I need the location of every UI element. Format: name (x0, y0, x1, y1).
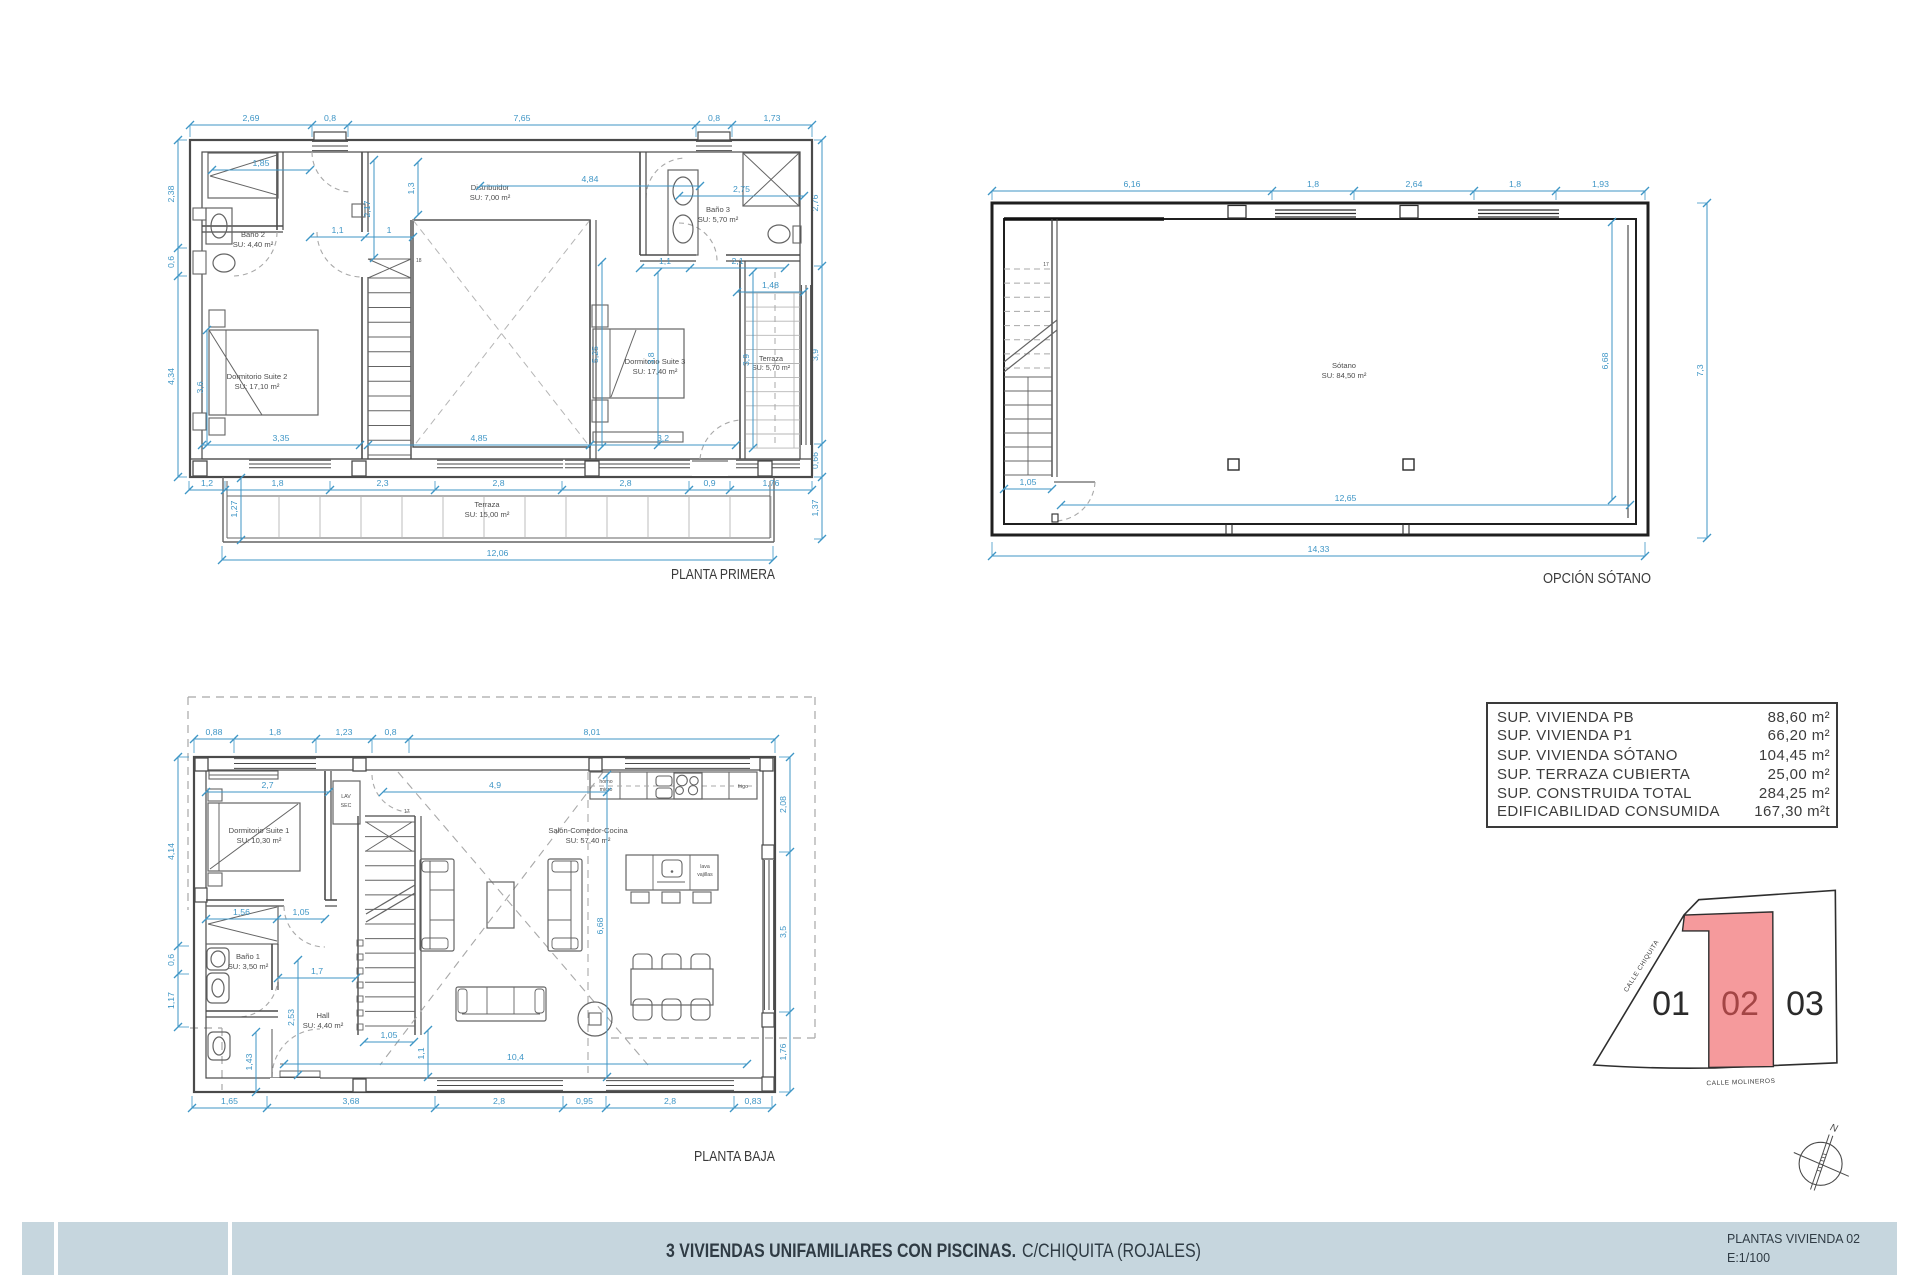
svg-text:284,25 m²: 284,25 m² (1759, 785, 1830, 802)
svg-text:SUP. VIVIENDA SÓTANO: SUP. VIVIENDA SÓTANO (1497, 747, 1678, 764)
svg-text:6,68: 6,68 (1600, 352, 1610, 369)
svg-text:25,00 m²: 25,00 m² (1768, 766, 1830, 783)
svg-text:18: 18 (416, 258, 422, 264)
svg-text:Salón-Comedor-Cocina: Salón-Comedor-Cocina (548, 826, 628, 835)
svg-text:C/CHIQUITA (ROJALES): C/CHIQUITA (ROJALES) (1022, 1241, 1201, 1262)
svg-text:vajillas: vajillas (697, 872, 713, 878)
svg-text:SU: 57,40 m²: SU: 57,40 m² (566, 836, 611, 845)
svg-text:1,1: 1,1 (416, 1047, 426, 1059)
svg-text:0,8: 0,8 (384, 727, 396, 737)
svg-text:4,84: 4,84 (582, 174, 599, 184)
svg-text:3,5: 3,5 (778, 926, 788, 938)
svg-text:2,17: 2,17 (362, 200, 372, 217)
svg-text:SU: 84,50 m²: SU: 84,50 m² (1322, 371, 1367, 380)
svg-text:Baño 1: Baño 1 (236, 952, 260, 961)
svg-text:SU: 5,70 m²: SU: 5,70 m² (698, 215, 739, 224)
svg-text:3,8: 3,8 (646, 352, 656, 364)
svg-text:PLANTA BAJA: PLANTA BAJA (694, 1148, 775, 1165)
svg-text:2,8: 2,8 (664, 1096, 676, 1106)
svg-text:1,1: 1,1 (659, 256, 671, 266)
svg-text:0,8: 0,8 (708, 113, 720, 123)
svg-text:1,76: 1,76 (763, 478, 780, 488)
svg-text:1: 1 (387, 225, 392, 235)
svg-text:E:1/100: E:1/100 (1727, 1251, 1770, 1265)
svg-text:Dormitorio Suite 2: Dormitorio Suite 2 (227, 372, 288, 381)
svg-text:frigo: frigo (738, 784, 748, 790)
svg-text:2,1: 2,1 (731, 256, 743, 266)
svg-text:Terraza: Terraza (759, 354, 783, 363)
svg-text:3,9: 3,9 (741, 354, 751, 366)
svg-text:1,8: 1,8 (269, 727, 281, 737)
svg-text:Baño 2: Baño 2 (241, 230, 265, 239)
svg-text:2,8: 2,8 (493, 1096, 505, 1106)
svg-text:7,3: 7,3 (1695, 364, 1705, 376)
svg-text:1,8: 1,8 (1509, 179, 1521, 189)
svg-text:66,20 m²: 66,20 m² (1768, 727, 1830, 744)
svg-text:PLANTA PRIMERA: PLANTA PRIMERA (671, 566, 775, 583)
svg-text:1,3: 1,3 (406, 182, 416, 194)
svg-text:10,4: 10,4 (507, 1052, 524, 1062)
svg-text:SUP. VIVIENDA PB: SUP. VIVIENDA PB (1497, 709, 1634, 726)
svg-text:2,8: 2,8 (619, 478, 631, 488)
svg-text:12,65: 12,65 (1335, 493, 1357, 503)
svg-text:1,73: 1,73 (764, 113, 781, 123)
svg-text:Distribuidor: Distribuidor (471, 183, 510, 192)
svg-text:Dormitorio Suite 1: Dormitorio Suite 1 (229, 826, 290, 835)
svg-text:1,93: 1,93 (1592, 179, 1609, 189)
svg-text:1,85: 1,85 (253, 158, 270, 168)
svg-text:1,76: 1,76 (778, 1043, 788, 1060)
svg-text:2,64: 2,64 (1406, 179, 1423, 189)
svg-text:2,08: 2,08 (778, 796, 788, 813)
svg-text:2,53: 2,53 (286, 1009, 296, 1026)
svg-text:2,8: 2,8 (492, 478, 504, 488)
svg-text:01: 01 (1652, 985, 1690, 1023)
svg-text:SUP. TERRAZA CUBIERTA: SUP. TERRAZA CUBIERTA (1497, 766, 1690, 783)
svg-text:1,2: 1,2 (201, 478, 213, 488)
svg-text:5,25: 5,25 (590, 346, 600, 363)
svg-text:SU: 15,00 m²: SU: 15,00 m² (465, 510, 510, 519)
svg-text:4,9: 4,9 (489, 780, 501, 790)
svg-text:SU: 17,40 m²: SU: 17,40 m² (633, 367, 678, 376)
svg-text:4,14: 4,14 (166, 843, 176, 860)
svg-text:104,45 m²: 104,45 m² (1759, 747, 1830, 764)
svg-text:7,65: 7,65 (514, 113, 531, 123)
svg-text:3 VIVIENDAS UNIFAMILIARES CON: 3 VIVIENDAS UNIFAMILIARES CON PISCINAS. (666, 1241, 1016, 1262)
svg-text:88,60 m²: 88,60 m² (1768, 709, 1830, 726)
svg-text:3,2: 3,2 (657, 433, 669, 443)
svg-text:4,85: 4,85 (471, 433, 488, 443)
svg-text:1,7: 1,7 (311, 966, 323, 976)
svg-text:2,69: 2,69 (243, 113, 260, 123)
svg-text:0,95: 0,95 (576, 1096, 593, 1106)
svg-text:6,68: 6,68 (595, 917, 605, 934)
svg-text:0,8: 0,8 (324, 113, 336, 123)
svg-text:0,6: 0,6 (166, 256, 176, 268)
svg-text:SUP. CONSTRUIDA TOTAL: SUP. CONSTRUIDA TOTAL (1497, 785, 1692, 802)
svg-text:SU: 3,50 m²: SU: 3,50 m² (228, 962, 269, 971)
svg-text:SU: 7,00 m²: SU: 7,00 m² (470, 193, 511, 202)
svg-text:0,88: 0,88 (206, 727, 223, 737)
svg-text:2,7: 2,7 (261, 780, 273, 790)
svg-text:1,05: 1,05 (1020, 477, 1037, 487)
svg-text:EDIFICABILIDAD CONSUMIDA: EDIFICABILIDAD CONSUMIDA (1497, 803, 1720, 820)
svg-text:1,05: 1,05 (293, 907, 310, 917)
svg-text:0,6: 0,6 (166, 954, 176, 966)
svg-text:2,3: 2,3 (376, 478, 388, 488)
svg-text:lava: lava (700, 864, 710, 870)
svg-text:SU: 4,40 m²: SU: 4,40 m² (303, 1021, 344, 1030)
svg-text:2,38: 2,38 (166, 185, 176, 202)
svg-text:8,01: 8,01 (584, 727, 601, 737)
svg-text:SU: 5,70 m²: SU: 5,70 m² (752, 363, 791, 372)
svg-text:horno: horno (599, 779, 612, 785)
svg-text:1,17: 1,17 (166, 992, 176, 1009)
svg-text:0,9: 0,9 (703, 478, 715, 488)
svg-text:1,27: 1,27 (229, 500, 239, 517)
svg-text:1,23: 1,23 (336, 727, 353, 737)
svg-text:LAV: LAV (341, 794, 351, 800)
svg-text:SEC: SEC (341, 803, 352, 809)
svg-text:Sótano: Sótano (1332, 361, 1356, 370)
svg-text:Terraza: Terraza (474, 500, 500, 509)
svg-text:3,35: 3,35 (273, 433, 290, 443)
svg-text:6,16: 6,16 (1124, 179, 1141, 189)
svg-text:1,43: 1,43 (244, 1053, 254, 1070)
svg-text:Hall: Hall (316, 1011, 329, 1020)
svg-text:02: 02 (1721, 985, 1759, 1023)
svg-text:SU: 10,30 m²: SU: 10,30 m² (237, 836, 282, 845)
svg-text:1,05: 1,05 (381, 1030, 398, 1040)
svg-text:1,8: 1,8 (271, 478, 283, 488)
svg-text:1,56: 1,56 (233, 907, 250, 917)
svg-text:OPCIÓN SÓTANO: OPCIÓN SÓTANO (1543, 570, 1651, 587)
svg-text:167,30 m²t: 167,30 m²t (1754, 803, 1830, 820)
svg-text:3,6: 3,6 (195, 381, 205, 393)
svg-text:SU: 4,40 m²: SU: 4,40 m² (233, 240, 274, 249)
svg-text:17: 17 (1043, 262, 1049, 268)
svg-text:1,65: 1,65 (221, 1096, 238, 1106)
svg-text:1,48: 1,48 (762, 280, 779, 290)
svg-text:Baño 3: Baño 3 (706, 205, 730, 214)
svg-text:14,33: 14,33 (1308, 544, 1330, 554)
svg-text:SUP. VIVIENDA P1: SUP. VIVIENDA P1 (1497, 727, 1632, 744)
svg-text:1,1: 1,1 (331, 225, 343, 235)
svg-text:1,8: 1,8 (1307, 179, 1319, 189)
svg-text:2,75: 2,75 (733, 184, 750, 194)
svg-text:1,37: 1,37 (810, 499, 820, 516)
svg-text:0,83: 0,83 (745, 1096, 762, 1106)
svg-text:03: 03 (1786, 985, 1824, 1023)
svg-text:12,06: 12,06 (487, 548, 509, 558)
svg-text:PLANTAS VIVIENDA 02: PLANTAS VIVIENDA 02 (1727, 1232, 1860, 1246)
svg-text:4,34: 4,34 (166, 368, 176, 385)
svg-text:SU: 17,10 m²: SU: 17,10 m² (235, 382, 280, 391)
svg-text:3,68: 3,68 (343, 1096, 360, 1106)
